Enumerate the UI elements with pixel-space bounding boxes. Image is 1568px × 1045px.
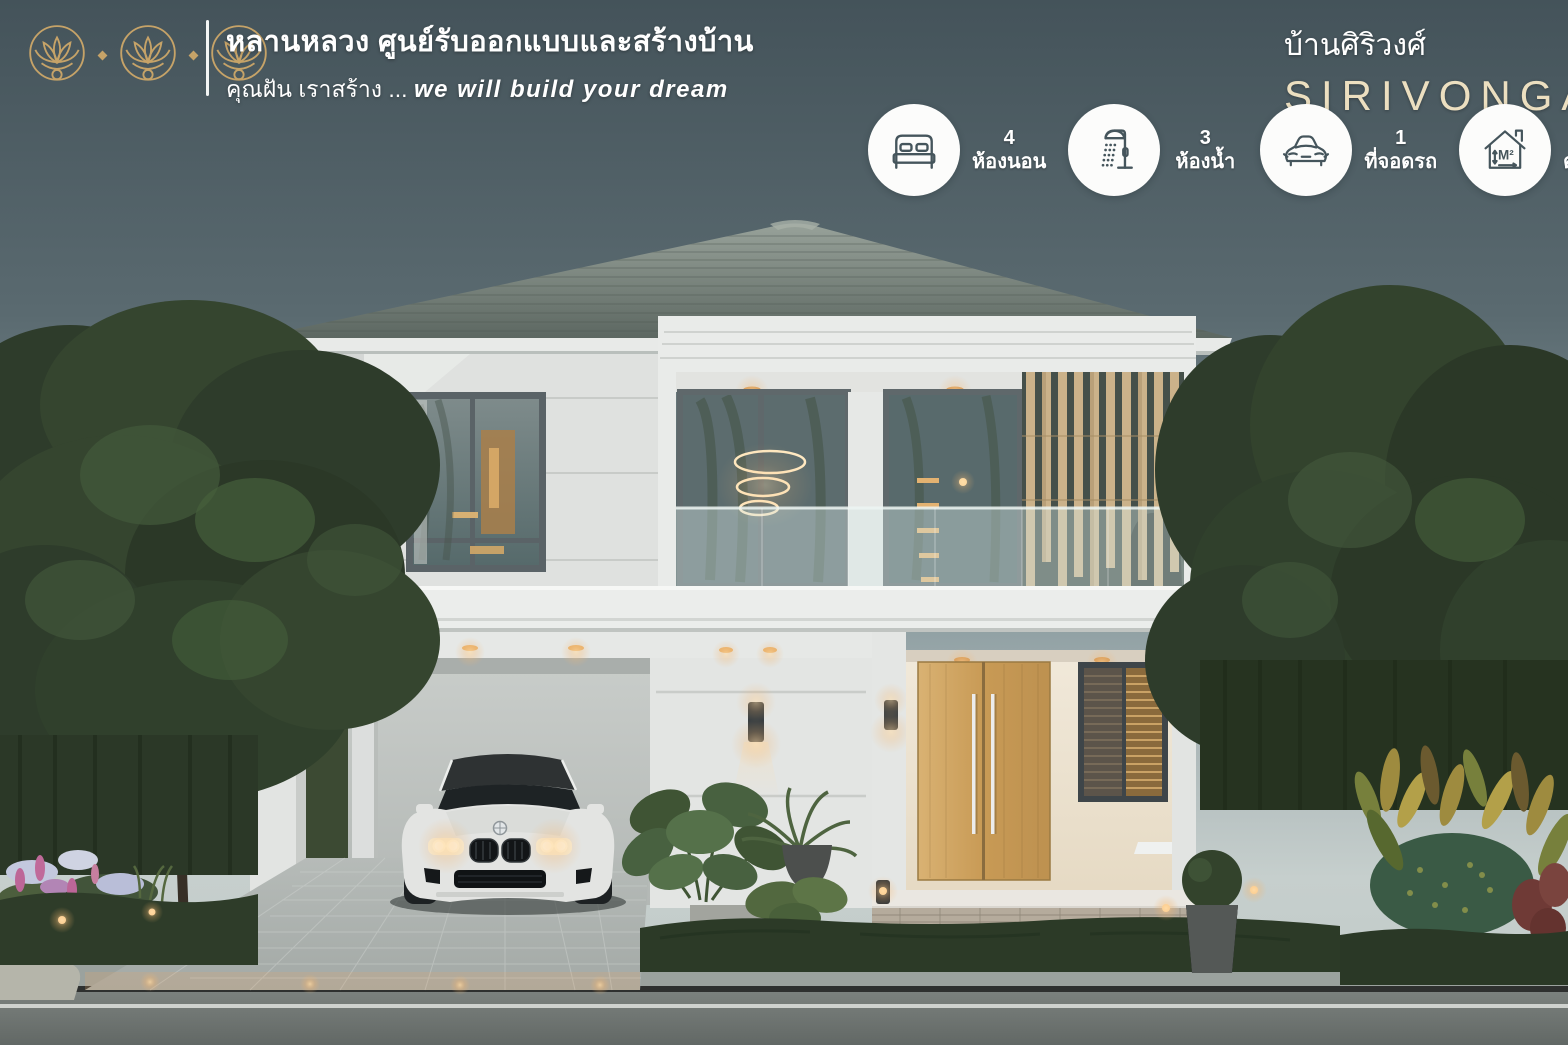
box-hedge-right xyxy=(1340,929,1568,985)
entry-door xyxy=(918,662,1050,880)
parking-text: 1 ที่จอดรถ xyxy=(1364,126,1437,174)
bedrooms-label: ห้องนอน xyxy=(972,150,1046,174)
feature-area: M² 175 ตารางเมตร xyxy=(1459,104,1568,196)
company-name: หลานหลวง ศูนย์รับออกแบบและสร้างบ้าน xyxy=(226,18,754,64)
bed-icon xyxy=(887,123,941,177)
road-line xyxy=(0,1004,1568,1008)
bathrooms-badge xyxy=(1068,104,1160,196)
feature-bathrooms: 3 ห้องน้ำ xyxy=(1068,104,1238,196)
bathrooms-value: 3 xyxy=(1172,126,1238,150)
balcony xyxy=(658,316,1196,592)
parking-label: ที่จอดรถ xyxy=(1364,150,1437,174)
lotus-icon xyxy=(115,22,181,88)
feature-bedrooms: 4 ห้องนอน xyxy=(868,104,1046,196)
company-block: หลานหลวง ศูนย์รับออกแบบและสร้างบ้าน คุณฝ… xyxy=(226,18,754,108)
feature-parking: 1 ที่จอดรถ xyxy=(1260,104,1437,196)
car-mirror xyxy=(587,804,604,814)
door-handle xyxy=(991,694,995,834)
left-garden xyxy=(0,735,258,965)
company-slogan: คุณฝัน เราสร้าง ... we will build your d… xyxy=(226,72,754,108)
box-hedge-left xyxy=(0,892,258,965)
car-mirror xyxy=(416,804,433,814)
area-value: 175 xyxy=(1563,126,1568,150)
porch-step xyxy=(872,890,1196,906)
right-trees xyxy=(1145,285,1568,810)
area-badge: M² xyxy=(1459,104,1551,196)
parking-badge xyxy=(1260,104,1352,196)
header-divider xyxy=(206,20,209,96)
road xyxy=(0,992,1568,1045)
door-handle xyxy=(972,694,976,834)
lotus-icon xyxy=(24,22,90,88)
bedrooms-badge xyxy=(868,104,960,196)
area-icon: M² xyxy=(1478,123,1532,177)
car-icon xyxy=(1279,123,1333,177)
area-text: 175 ตารางเมตร xyxy=(1563,126,1568,174)
hedge-wall-left xyxy=(0,735,258,875)
bathrooms-text: 3 ห้องน้ำ xyxy=(1172,126,1238,174)
step-light-strip xyxy=(85,972,640,990)
area-unit-mark: M² xyxy=(1498,147,1514,162)
parking-value: 1 xyxy=(1364,126,1437,150)
wall-sconce xyxy=(731,682,781,800)
glass-railing xyxy=(676,508,1184,586)
bathrooms-label: ห้องน้ำ xyxy=(1172,150,1238,174)
car-intake xyxy=(454,870,546,888)
diamond-separator xyxy=(98,50,108,60)
bedrooms-value: 4 xyxy=(972,126,1046,150)
feature-row: 4 ห้องนอน xyxy=(868,104,1568,196)
project-name-thai: บ้านศิริวงศ์ xyxy=(1284,22,1568,69)
floor-lantern xyxy=(868,876,898,906)
bedrooms-text: 4 ห้องนอน xyxy=(972,126,1046,174)
diamond-separator xyxy=(189,50,199,60)
curb-stone xyxy=(0,962,80,1000)
area-label: ตารางเมตร xyxy=(1563,150,1568,174)
slogan-english: we will build your dream xyxy=(414,76,729,103)
entry-left-sconce xyxy=(870,683,912,753)
slogan-thai: คุณฝัน เราสร้าง ... xyxy=(226,76,408,102)
shower-icon xyxy=(1087,123,1141,177)
